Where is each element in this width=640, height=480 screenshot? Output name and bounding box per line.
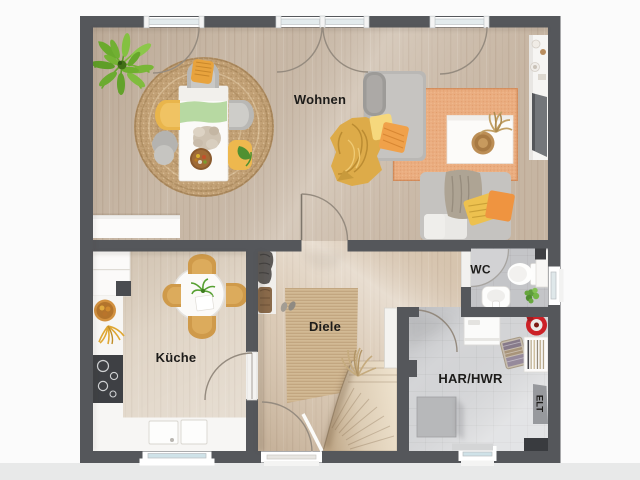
svg-text:HAR/HWR: HAR/HWR [438, 371, 503, 386]
svg-text:Wohnen: Wohnen [294, 92, 346, 107]
svg-text:Küche: Küche [156, 350, 197, 365]
svg-text:ELT: ELT [534, 395, 545, 412]
svg-text:WC: WC [470, 263, 491, 277]
svg-text:Diele: Diele [309, 319, 341, 334]
